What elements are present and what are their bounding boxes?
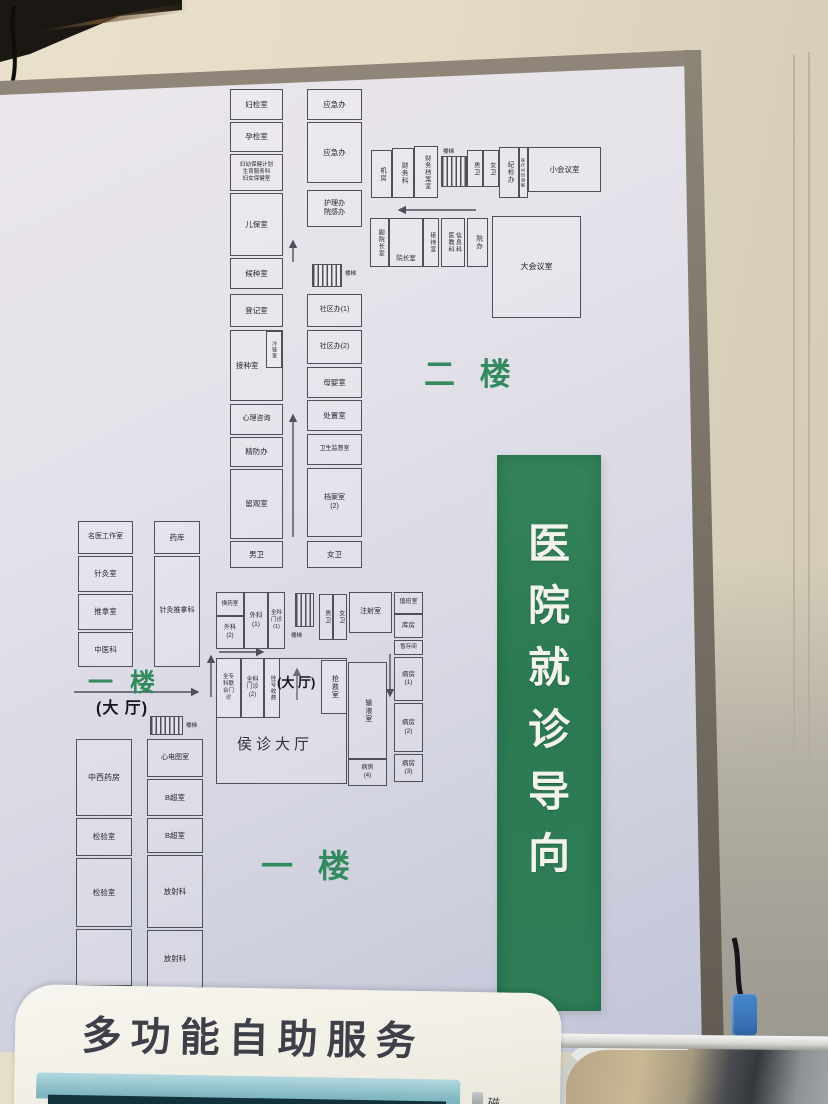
stairs-icon bbox=[312, 264, 342, 287]
stairs-icon bbox=[150, 716, 183, 735]
selfservice-machine: 多功能自助服务 磁 bbox=[14, 984, 562, 1104]
room-box: 母婴室 bbox=[307, 367, 362, 398]
room-box: 纪检办 bbox=[499, 147, 519, 198]
plan-title-label: (大 厅) bbox=[96, 694, 148, 718]
room-box: 检验室 bbox=[76, 818, 132, 856]
metal-frame-corner bbox=[556, 1040, 688, 1104]
card-slot-icon bbox=[472, 1092, 483, 1104]
room-box: 心理咨询 bbox=[230, 404, 283, 435]
stairs-icon bbox=[295, 593, 314, 627]
room-box: 注射室 bbox=[349, 592, 392, 633]
room-box: 应急办 bbox=[307, 89, 362, 120]
banner-character: 向 bbox=[528, 833, 570, 875]
room-box: 值班室 bbox=[394, 592, 423, 614]
plan-title-label: 侯诊大厅 bbox=[237, 733, 313, 754]
room-box: 儿保室 bbox=[230, 193, 283, 256]
room-box: 库房 bbox=[394, 614, 423, 638]
room-box: 全科 门诊 (2) bbox=[241, 658, 264, 718]
room-box: 心电图室 bbox=[147, 739, 203, 777]
room-box: 机房 bbox=[371, 150, 392, 198]
room-box: 小会议室 bbox=[528, 147, 601, 192]
banner-character: 导 bbox=[528, 771, 570, 813]
room-box: 病房 (3) bbox=[394, 754, 423, 782]
room-box: 男卫 bbox=[319, 594, 333, 640]
room-box: 应急办 bbox=[307, 122, 362, 183]
room-box: 候种室 bbox=[230, 258, 283, 289]
floor-plan: 妇检室孕检室妇幼保健计划 生育服务科 妇女保健室儿保室候种室登记室接种室冷链室心… bbox=[0, 0, 828, 1104]
room-box: 精防办 bbox=[230, 437, 283, 467]
room-box: 名医工作室 bbox=[78, 521, 133, 554]
stairs-icon bbox=[441, 156, 467, 187]
room-box: 中医科 bbox=[78, 632, 133, 667]
card-reader-label: 磁 bbox=[488, 1094, 500, 1104]
room-box: 财务科 bbox=[392, 148, 414, 198]
room-box: 女卫 bbox=[307, 541, 362, 568]
room-box: 社区办(2) bbox=[307, 330, 362, 364]
room-box: 留观室 bbox=[230, 469, 283, 539]
room-box: 男卫 bbox=[467, 150, 483, 187]
room-box: 病房 (1) bbox=[394, 657, 423, 701]
room-box: 中西药房 bbox=[76, 739, 132, 816]
room-box: 男卫 bbox=[230, 541, 283, 568]
room-box: 暂存间 bbox=[394, 640, 423, 655]
room-box: 外科 (1) bbox=[244, 592, 268, 649]
room-box: 全科 门诊 (1) bbox=[268, 592, 285, 649]
plan-title-label: (大 厅) bbox=[277, 672, 315, 691]
room-box: 换药室 bbox=[216, 592, 244, 616]
machine-title: 多功能自助服务 bbox=[51, 1003, 456, 1068]
banner-character: 院 bbox=[528, 585, 570, 627]
stairs-label: 楼梯 bbox=[186, 721, 197, 729]
room-box: 推拿室 bbox=[78, 594, 133, 630]
banner-hospital-guide: 医院就诊导向 bbox=[497, 455, 601, 1011]
room-box: 输液室 bbox=[348, 662, 387, 759]
room-box: 病房 (4) bbox=[348, 759, 387, 786]
room-box: 放射科 bbox=[147, 855, 203, 928]
room-box: 全专 科联 合门 诊 bbox=[216, 658, 241, 718]
room-box: 医疗纠纷调解 bbox=[519, 147, 528, 198]
room-box: 外科 (2) bbox=[216, 616, 244, 649]
banner-character: 医 bbox=[528, 523, 570, 565]
room-box: 妇幼保健计划 生育服务科 妇女保健室 bbox=[230, 154, 283, 191]
room-box: 处置室 bbox=[307, 400, 362, 431]
plan-title-label: 二 楼 bbox=[424, 349, 519, 394]
room-box: 病房 (2) bbox=[394, 703, 423, 752]
photo-of-hospital-sign: 妇检室孕检室妇幼保健计划 生育服务科 妇女保健室儿保室候种室登记室接种室冷链室心… bbox=[0, 0, 828, 1104]
room-box: 副院长室 bbox=[370, 218, 389, 267]
stairs-label: 楼梯 bbox=[345, 269, 356, 277]
plan-title-label: 一 楼 bbox=[261, 841, 358, 887]
room-box: 女卫 bbox=[333, 594, 347, 640]
room-box: 社区办(1) bbox=[307, 294, 362, 327]
room-box: 大会议室 bbox=[492, 216, 581, 318]
room-box: 护理办 院感办 bbox=[307, 190, 362, 227]
room-box: 检验室 bbox=[76, 858, 132, 927]
room-box: 卫生监督室 bbox=[307, 434, 362, 465]
room-box: 妇检室 bbox=[230, 89, 283, 120]
banner-character: 就 bbox=[528, 647, 570, 689]
room-box: 登记室 bbox=[230, 294, 283, 327]
room-box: 接待室 bbox=[423, 218, 439, 267]
room-box bbox=[76, 929, 132, 986]
stairs-label: 楼梯 bbox=[291, 631, 302, 639]
room-box: 针灸推拿科 bbox=[154, 556, 200, 667]
room-box: B超室 bbox=[147, 818, 203, 853]
room-box: 院办 bbox=[467, 218, 488, 267]
room-box: 抢救室 bbox=[321, 660, 347, 714]
room-box: 院长室 bbox=[389, 218, 423, 267]
room-box: 孕检室 bbox=[230, 122, 283, 152]
room-box: 针灸室 bbox=[78, 556, 133, 592]
room-box: 冷链室 bbox=[266, 331, 282, 368]
room-box: 财务档案室 bbox=[414, 146, 438, 198]
room-box: 药库 bbox=[154, 521, 200, 554]
room-box: B超室 bbox=[147, 779, 203, 816]
room-box: 女卫 bbox=[483, 150, 499, 187]
room-box: 档案室 (2) bbox=[307, 468, 362, 537]
stairs-label: 楼梯 bbox=[443, 147, 454, 155]
banner-character: 诊 bbox=[528, 709, 570, 751]
room-box: 放射科 bbox=[147, 930, 203, 988]
room-box: 医教科 信息科 bbox=[441, 218, 465, 267]
usb-connector bbox=[731, 994, 757, 1036]
